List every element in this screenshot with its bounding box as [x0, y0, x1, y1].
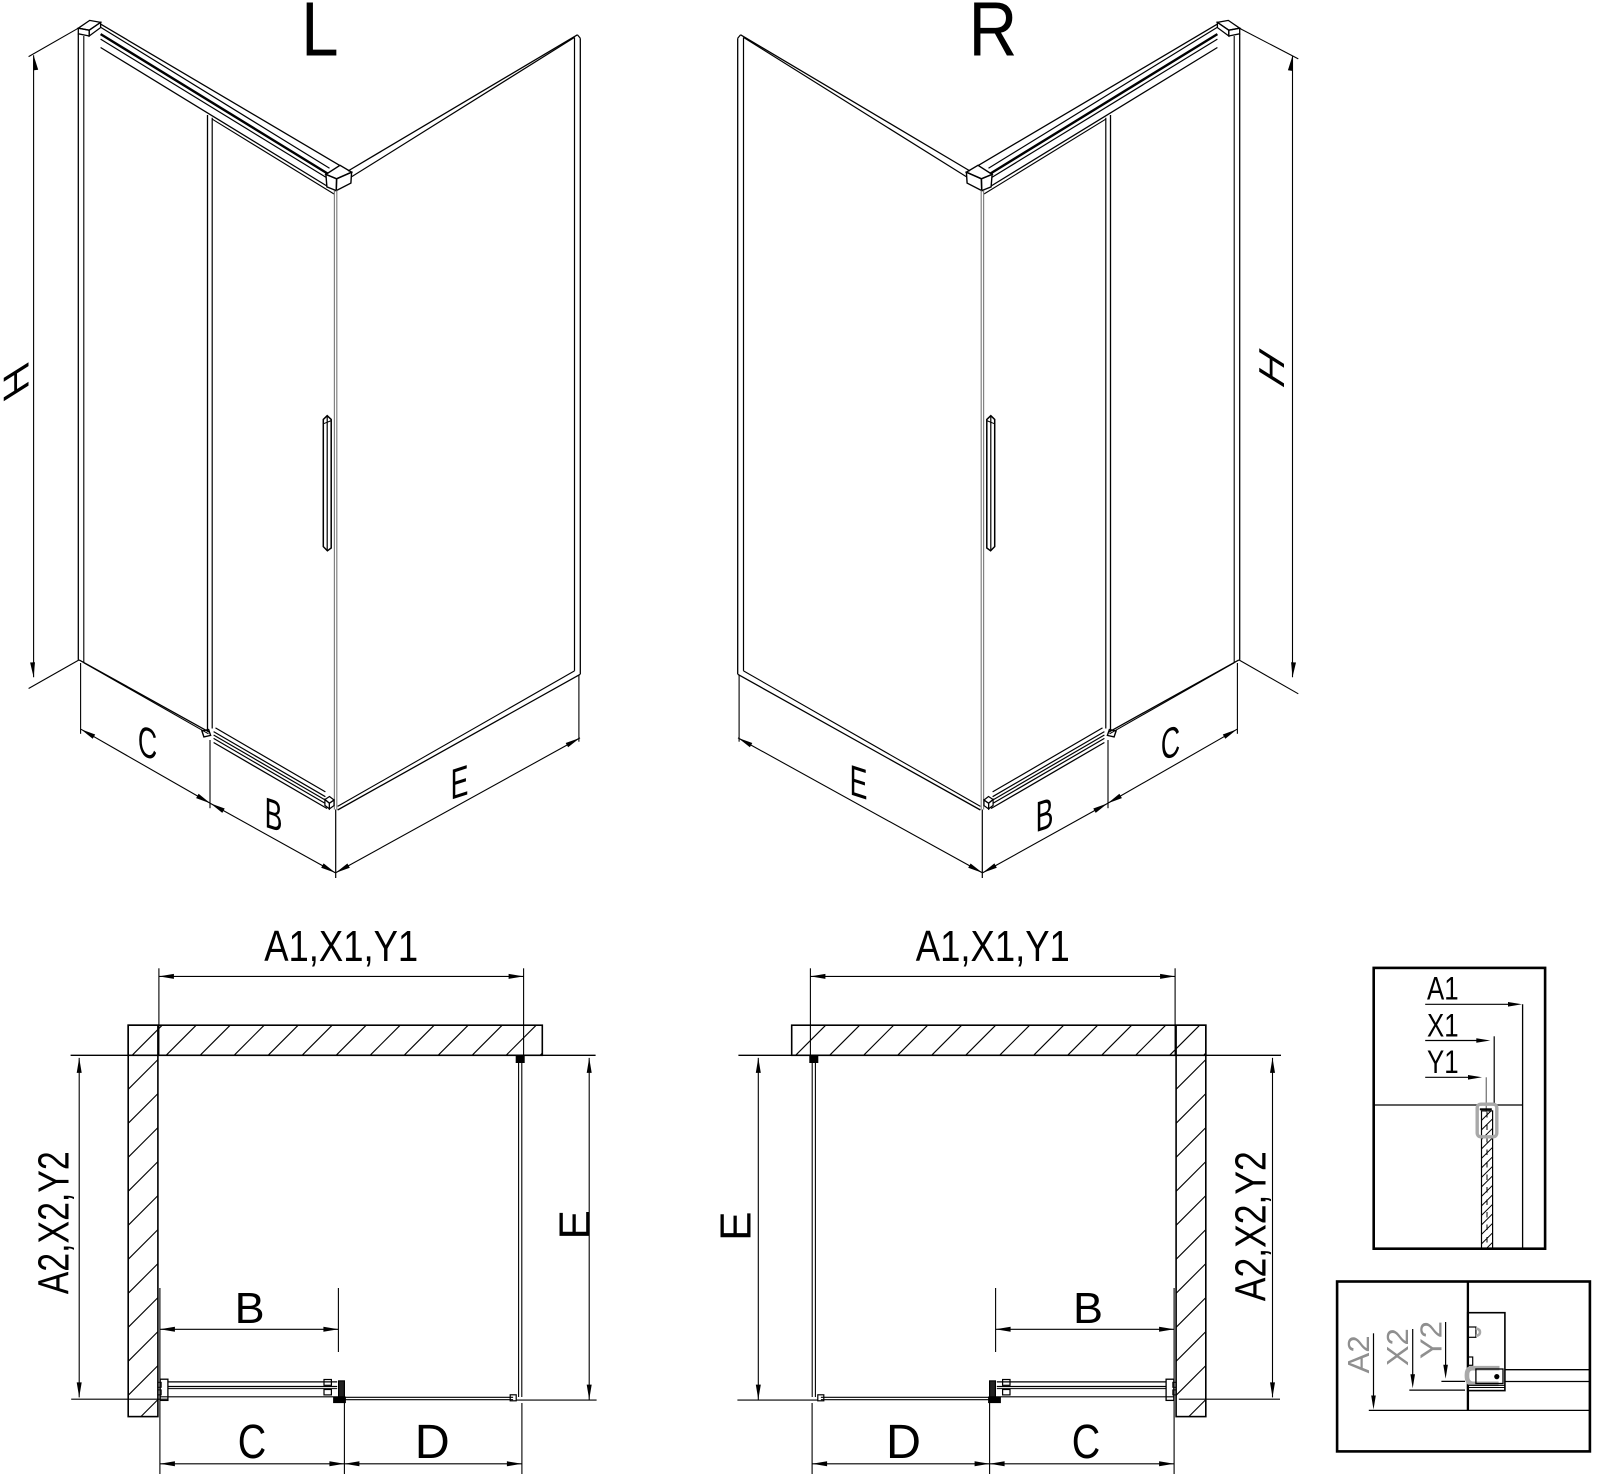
- svg-text:A2,X2,Y2: A2,X2,Y2: [30, 1151, 79, 1294]
- svg-text:A2: A2: [1341, 1335, 1376, 1373]
- svg-text:A1,X1,Y1: A1,X1,Y1: [916, 922, 1070, 971]
- svg-text:D: D: [415, 1416, 450, 1469]
- svg-text:B: B: [265, 788, 283, 842]
- svg-text:R: R: [969, 0, 1018, 73]
- svg-text:E: E: [451, 755, 469, 809]
- svg-text:E: E: [551, 1210, 600, 1239]
- svg-text:E: E: [850, 755, 868, 809]
- svg-text:D: D: [886, 1416, 921, 1469]
- svg-text:E: E: [712, 1212, 761, 1241]
- svg-text:Y2: Y2: [1414, 1321, 1449, 1359]
- svg-text:C: C: [138, 715, 157, 770]
- svg-text:B: B: [1073, 1284, 1103, 1333]
- svg-text:B: B: [235, 1284, 265, 1333]
- svg-text:B: B: [1036, 788, 1054, 842]
- svg-text:C: C: [1072, 1416, 1101, 1469]
- svg-text:L: L: [301, 0, 338, 73]
- svg-text:Y1: Y1: [1427, 1044, 1459, 1080]
- svg-text:A1,X1,Y1: A1,X1,Y1: [264, 922, 418, 971]
- svg-text:X2: X2: [1380, 1328, 1415, 1366]
- svg-text:A2,X2,Y2: A2,X2,Y2: [1227, 1151, 1276, 1301]
- svg-text:A1: A1: [1427, 971, 1459, 1007]
- svg-text:C: C: [238, 1416, 267, 1469]
- svg-text:C: C: [1161, 715, 1180, 770]
- svg-text:X1: X1: [1427, 1007, 1459, 1043]
